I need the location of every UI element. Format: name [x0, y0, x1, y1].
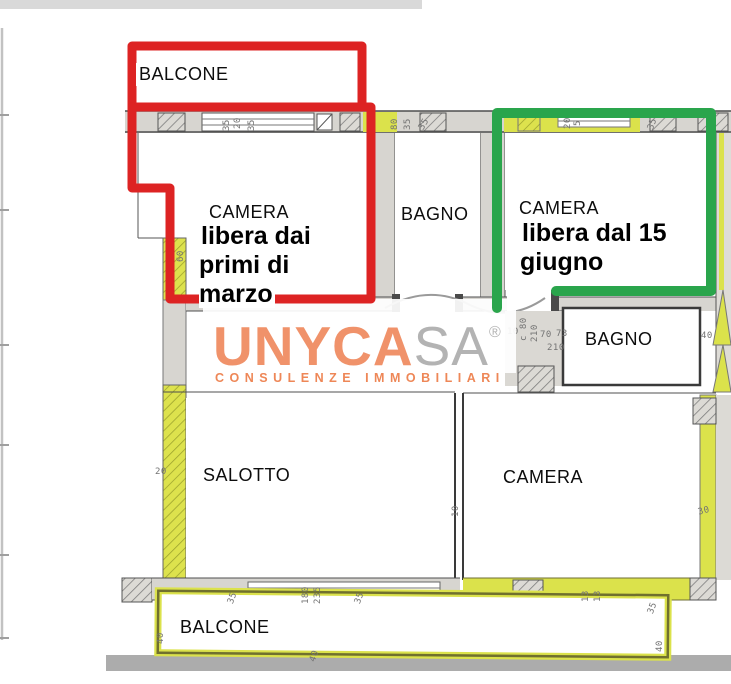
label-camera-bottom: CAMERA — [500, 466, 586, 489]
label-salotto: SALOTTO — [200, 464, 293, 487]
label-bagno-top: BAGNO — [398, 203, 472, 226]
label-camera-right: CAMERA — [516, 197, 602, 220]
label-camera-left: CAMERA — [206, 201, 292, 224]
label-balcone-bottom: BALCONE — [177, 616, 273, 639]
note-camera-left: libera dai primi di marzo — [199, 222, 311, 309]
note-camera-right: libera dal 15 giugno — [520, 219, 667, 277]
label-bagno-right: BAGNO — [582, 328, 656, 351]
label-balcone-top: BALCONE — [136, 63, 232, 86]
floor-plan-image: 1804004042003520358035352053560c 8021010… — [0, 0, 731, 684]
